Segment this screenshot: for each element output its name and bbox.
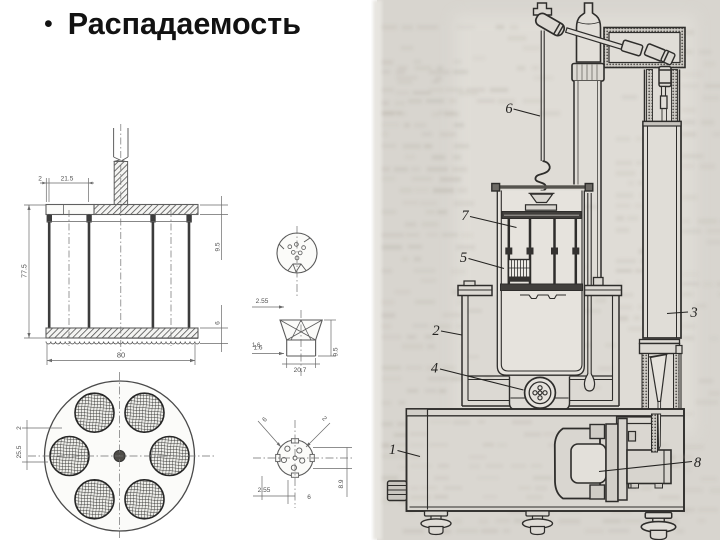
svg-text:6: 6 — [505, 101, 513, 117]
svg-text:6: 6 — [261, 416, 269, 424]
svg-text:2: 2 — [38, 176, 42, 183]
svg-text:80: 80 — [117, 351, 125, 360]
svg-text:1.6: 1.6 — [253, 345, 262, 352]
svg-text:8.9: 8.9 — [338, 479, 345, 488]
svg-text:2: 2 — [16, 426, 23, 430]
svg-text:3: 3 — [689, 305, 697, 321]
svg-text:25.5: 25.5 — [16, 445, 23, 458]
svg-text:6: 6 — [215, 321, 222, 325]
svg-text:20.7: 20.7 — [294, 367, 307, 374]
svg-text:2.55: 2.55 — [258, 487, 271, 494]
svg-text:8: 8 — [694, 455, 702, 471]
svg-text:1: 1 — [389, 442, 396, 458]
svg-text:2.55: 2.55 — [256, 298, 269, 305]
svg-text:6: 6 — [307, 494, 311, 501]
svg-text:77.5: 77.5 — [22, 264, 29, 278]
svg-text:2: 2 — [432, 323, 439, 339]
svg-text:9.5: 9.5 — [215, 242, 222, 251]
svg-text:4: 4 — [431, 361, 438, 377]
svg-text:7: 7 — [461, 208, 469, 224]
svg-text:2: 2 — [320, 415, 328, 423]
svg-text:9.5: 9.5 — [333, 347, 340, 356]
svg-text:5: 5 — [460, 250, 467, 266]
svg-text:21.5: 21.5 — [61, 176, 74, 183]
